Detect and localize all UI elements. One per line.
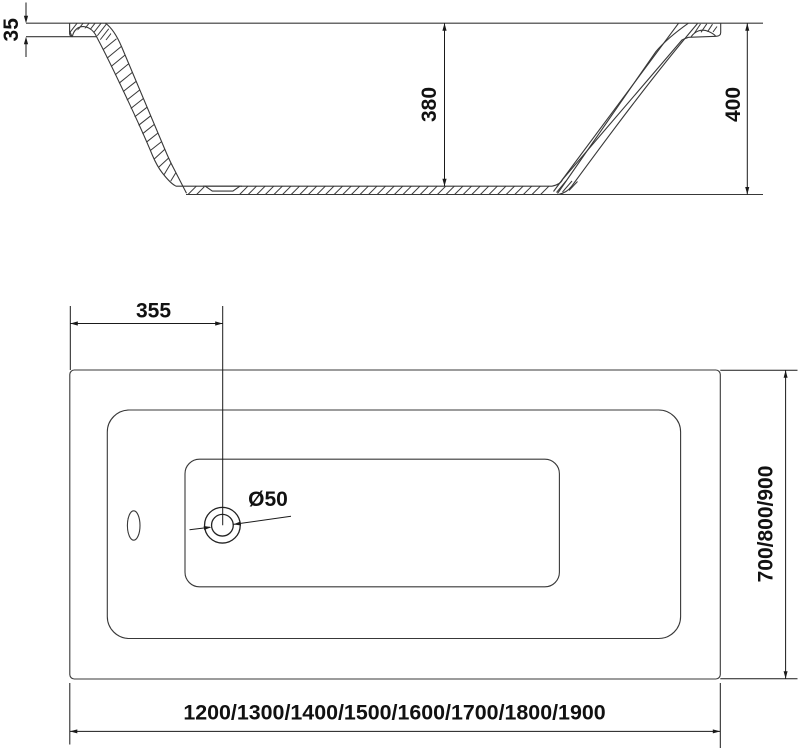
svg-text:355: 355	[136, 300, 171, 323]
svg-text:1200/1300/1400/1500/1600/1700/: 1200/1300/1400/1500/1600/1700/1800/1900	[183, 701, 605, 725]
svg-text:400: 400	[722, 87, 745, 122]
svg-text:35: 35	[0, 18, 23, 42]
svg-text:Ø50: Ø50	[248, 488, 288, 511]
svg-text:700/800/900: 700/800/900	[754, 466, 777, 583]
svg-text:380: 380	[418, 87, 441, 122]
